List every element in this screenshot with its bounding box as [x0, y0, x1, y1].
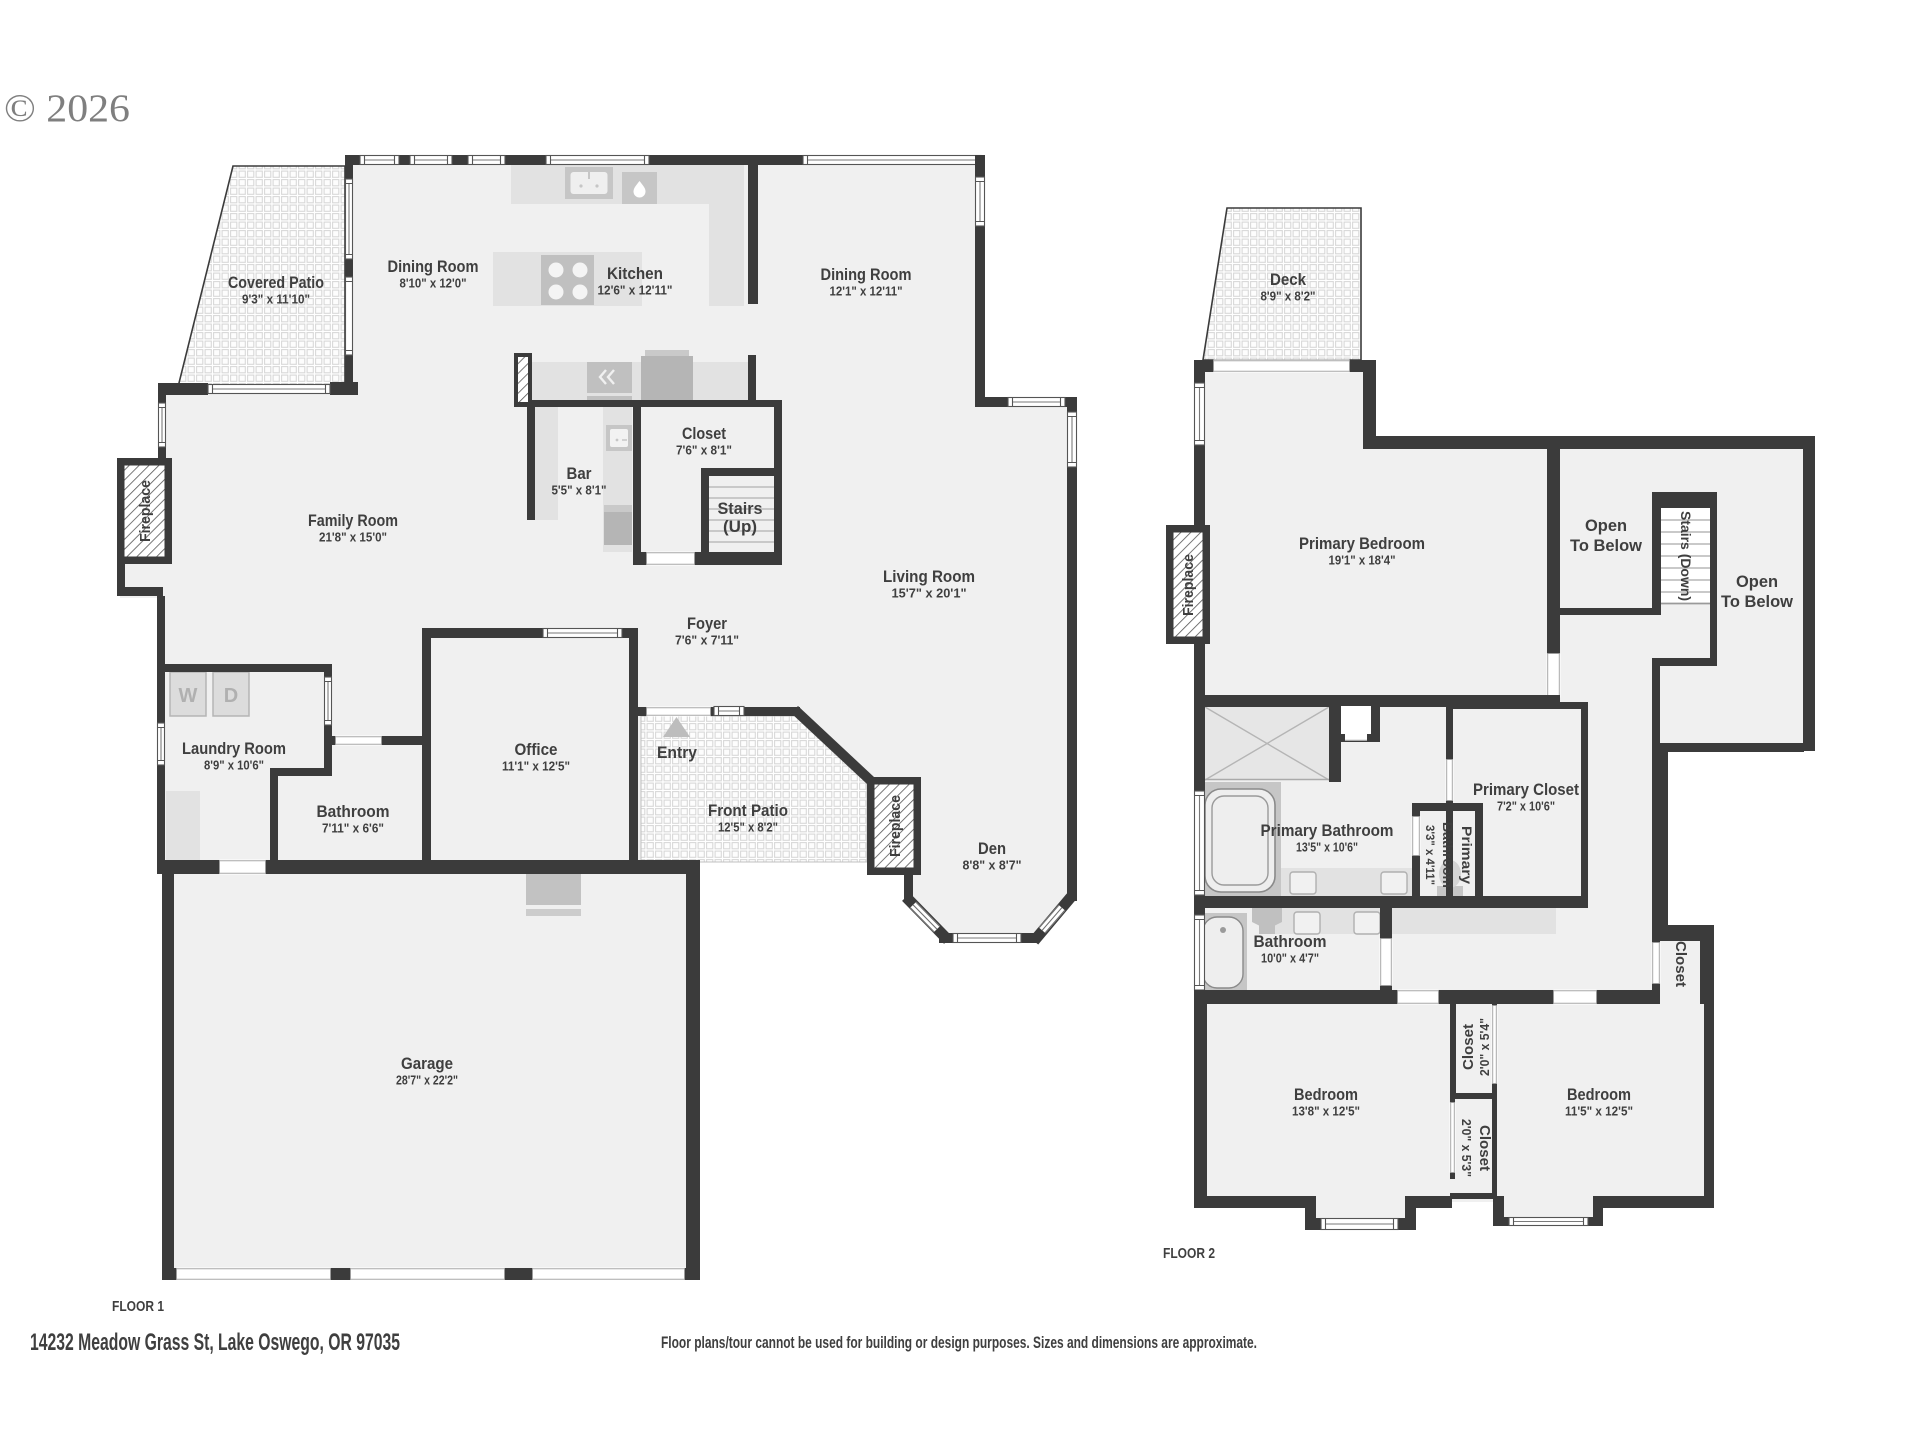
svg-text:2'0" x 5'3": 2'0" x 5'3": [1459, 1119, 1473, 1177]
svg-text:7'6" x 7'11": 7'6" x 7'11": [675, 633, 739, 648]
svg-text:Entry: Entry: [657, 744, 698, 762]
svg-text:© 2026: © 2026: [4, 87, 130, 130]
svg-text:7'11" x 6'6": 7'11" x 6'6": [322, 821, 384, 836]
svg-text:8'10" x 12'0": 8'10" x 12'0": [400, 276, 467, 291]
svg-text:Stairs (Down): Stairs (Down): [1678, 511, 1694, 601]
svg-text:Primary Bathroom: Primary Bathroom: [1261, 822, 1394, 840]
svg-text:Covered Patio: Covered Patio: [228, 274, 324, 292]
svg-text:Primary: Primary: [1459, 826, 1475, 884]
svg-text:3'3" x 4'11": 3'3" x 4'11": [1423, 825, 1437, 885]
svg-text:Fireplace: Fireplace: [137, 480, 154, 542]
svg-text:Fireplace: Fireplace: [1180, 554, 1197, 616]
svg-text:2'0" x 5'4": 2'0" x 5'4": [1478, 1018, 1492, 1076]
svg-text:Bedroom: Bedroom: [1567, 1086, 1631, 1104]
svg-text:Office: Office: [515, 741, 558, 759]
svg-text:Kitchen: Kitchen: [607, 265, 663, 283]
svg-text:8'8" x 8'7": 8'8" x 8'7": [963, 858, 1022, 873]
svg-text:7'6" x 8'1": 7'6" x 8'1": [676, 443, 732, 458]
svg-text:21'8" x 15'0": 21'8" x 15'0": [319, 530, 387, 545]
svg-text:12'5" x 8'2": 12'5" x 8'2": [718, 820, 778, 835]
svg-text:Dining Room: Dining Room: [821, 266, 912, 284]
svg-text:Foyer: Foyer: [687, 615, 728, 633]
svg-text:Family Room: Family Room: [308, 512, 398, 530]
svg-text:Primary Closet: Primary Closet: [1473, 781, 1579, 799]
svg-text:28'7" x 22'2": 28'7" x 22'2": [396, 1073, 458, 1088]
svg-text:9'3" x 11'10": 9'3" x 11'10": [242, 292, 310, 307]
svg-text:Garage: Garage: [401, 1055, 453, 1073]
svg-text:Closet: Closet: [1460, 1024, 1477, 1070]
svg-text:Dining Room: Dining Room: [388, 258, 479, 276]
svg-text:Open: Open: [1736, 573, 1778, 591]
svg-text:Laundry Room: Laundry Room: [182, 740, 286, 758]
svg-text:8'9" x 10'6": 8'9" x 10'6": [204, 758, 264, 773]
svg-text:13'5" x 10'6": 13'5" x 10'6": [1296, 840, 1358, 855]
svg-text:To Below: To Below: [1721, 593, 1793, 611]
svg-text:7'2" x 10'6": 7'2" x 10'6": [1497, 799, 1555, 814]
svg-text:Front Patio: Front Patio: [708, 802, 788, 820]
svg-text:Floor plans/tour cannot be use: Floor plans/tour cannot be used for buil…: [661, 1333, 1257, 1352]
svg-text:Stairs: Stairs: [718, 500, 763, 518]
svg-text:Closet: Closet: [682, 425, 726, 443]
svg-text:Fireplace: Fireplace: [887, 795, 904, 857]
svg-text:Den: Den: [978, 840, 1006, 858]
svg-text:12'6" x 12'11": 12'6" x 12'11": [598, 283, 673, 298]
svg-text:Deck: Deck: [1270, 271, 1307, 289]
svg-text:8'9" x 8'2": 8'9" x 8'2": [1261, 289, 1316, 304]
svg-text:19'1" x 18'4": 19'1" x 18'4": [1329, 553, 1396, 568]
svg-text:Open: Open: [1585, 517, 1627, 535]
svg-text:Bedroom: Bedroom: [1294, 1086, 1358, 1104]
svg-text:FLOOR 1: FLOOR 1: [112, 1299, 164, 1315]
svg-text:Closet: Closet: [1672, 941, 1689, 987]
svg-text:Closet: Closet: [1476, 1125, 1493, 1171]
svg-text:15'7" x 20'1": 15'7" x 20'1": [892, 586, 967, 601]
svg-text:Bar: Bar: [567, 465, 593, 483]
svg-text:12'1" x 12'11": 12'1" x 12'11": [830, 284, 903, 299]
svg-text:Living Room: Living Room: [883, 568, 975, 586]
svg-text:W: W: [179, 685, 198, 707]
svg-text:14232 Meadow Grass St, Lake Os: 14232 Meadow Grass St, Lake Oswego, OR 9…: [30, 1329, 400, 1356]
svg-text:Bathroom: Bathroom: [317, 803, 390, 821]
svg-text:13'8" x 12'5": 13'8" x 12'5": [1292, 1104, 1360, 1119]
svg-text:Primary Bedroom: Primary Bedroom: [1299, 535, 1425, 553]
svg-text:D: D: [224, 685, 238, 707]
svg-text:(Up): (Up): [723, 518, 757, 536]
svg-text:11'5" x 12'5": 11'5" x 12'5": [1565, 1104, 1633, 1119]
svg-text:Bathroom: Bathroom: [1254, 933, 1327, 951]
svg-text:5'5" x 8'1": 5'5" x 8'1": [552, 483, 607, 498]
svg-text:11'1" x 12'5": 11'1" x 12'5": [502, 759, 570, 774]
svg-text:To Below: To Below: [1570, 537, 1642, 555]
svg-text:10'0" x 4'7": 10'0" x 4'7": [1261, 951, 1319, 966]
svg-text:Bathroom: Bathroom: [1440, 822, 1456, 888]
svg-text:FLOOR 2: FLOOR 2: [1163, 1246, 1215, 1262]
